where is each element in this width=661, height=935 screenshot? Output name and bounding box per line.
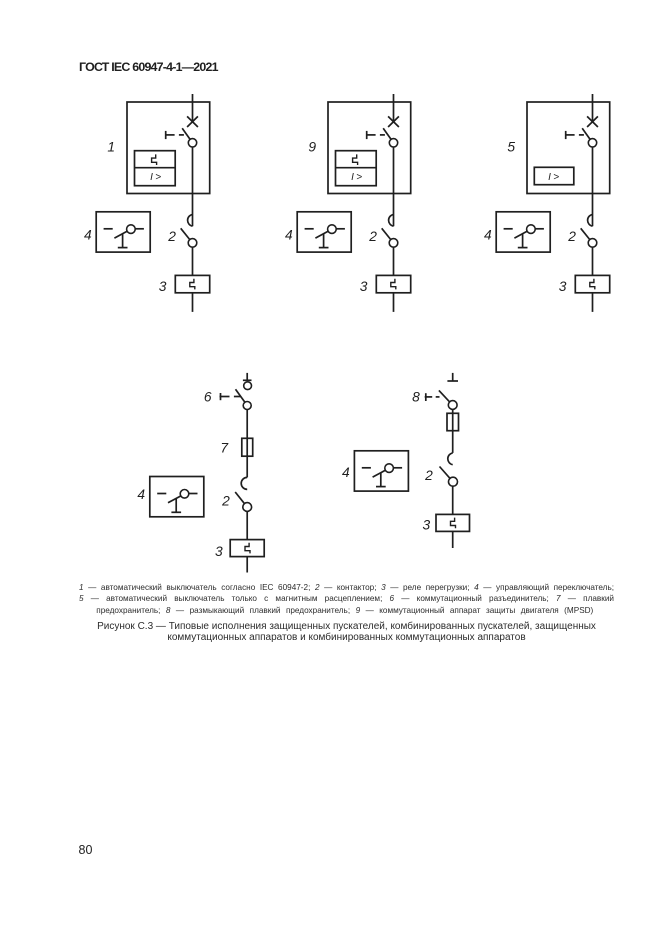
svg-text:8: 8 — [412, 390, 420, 405]
svg-text:2: 2 — [567, 229, 576, 244]
svg-text:6: 6 — [204, 389, 212, 404]
svg-text:4: 4 — [137, 487, 145, 502]
svg-text:4: 4 — [84, 228, 92, 243]
svg-text:7: 7 — [220, 441, 229, 456]
svg-text:4: 4 — [484, 228, 492, 243]
svg-text:3: 3 — [559, 279, 567, 294]
svg-text:3: 3 — [422, 517, 430, 532]
svg-text:2: 2 — [424, 468, 433, 483]
svg-text:2: 2 — [167, 229, 176, 244]
svg-text:5: 5 — [507, 140, 515, 155]
svg-text:2: 2 — [221, 493, 230, 508]
svg-text:9: 9 — [308, 140, 316, 155]
svg-text:I>: I> — [548, 172, 559, 183]
svg-text:I>: I> — [351, 172, 362, 183]
svg-text:I>: I> — [150, 172, 161, 183]
svg-text:1: 1 — [107, 140, 115, 155]
svg-text:3: 3 — [360, 279, 368, 294]
svg-text:4: 4 — [285, 228, 293, 243]
svg-text:4: 4 — [342, 465, 350, 480]
svg-text:3: 3 — [215, 544, 223, 559]
svg-text:3: 3 — [159, 279, 167, 294]
svg-text:2: 2 — [368, 229, 377, 244]
